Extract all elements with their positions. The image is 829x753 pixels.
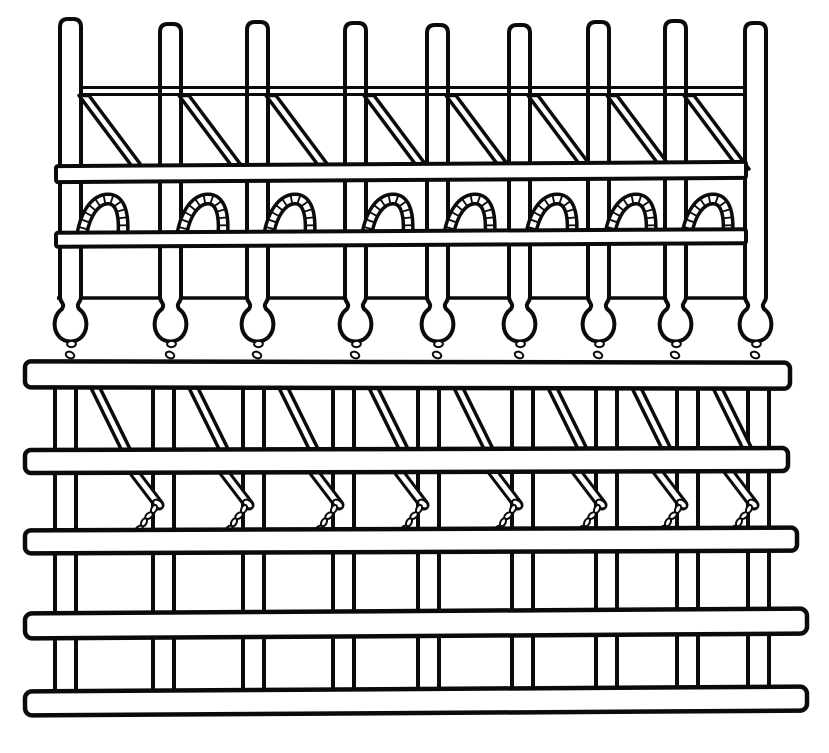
- top-diagonal-strut: [364, 96, 429, 170]
- top-diagonal-strut: [179, 96, 244, 170]
- bulb-chain-link: [672, 341, 681, 348]
- bulb-chain-link: [165, 350, 175, 359]
- lower-diagonal-strut: [453, 386, 495, 453]
- lower-rail-5: [25, 687, 807, 716]
- loop-segment-tick: [117, 217, 127, 218]
- needle-bar: [583, 22, 615, 342]
- bulb-chain-link: [514, 350, 524, 359]
- bulb-chain-link: [252, 350, 262, 359]
- bulb-chain-link: [750, 350, 760, 359]
- loop-segment-tick: [722, 217, 732, 218]
- needle-bar: [740, 23, 772, 342]
- top-diagonal-strut: [79, 96, 144, 170]
- lower-rail-1: [25, 361, 790, 388]
- bulb-chain-link: [67, 341, 76, 348]
- loop-segment-tick: [645, 217, 655, 218]
- bulb-chain-link: [65, 350, 75, 359]
- chevron-hooks: [130, 467, 759, 534]
- upper-rail-2: [56, 229, 746, 247]
- lower-rail-2: [25, 448, 788, 473]
- loop-segment-tick: [402, 217, 412, 218]
- lower-rail-3: [25, 528, 797, 554]
- loop-segment-tick: [304, 217, 314, 218]
- top-diagonal-strut: [607, 96, 672, 170]
- bulb-chain-link: [350, 350, 360, 359]
- bulb-chain-link: [516, 341, 525, 348]
- lower-diagonal-strut: [188, 386, 230, 453]
- loop-segment-tick: [484, 217, 494, 218]
- top-diagonal-strut: [266, 96, 331, 170]
- needle-bar: [422, 25, 454, 342]
- loop-segment-tick: [217, 217, 227, 218]
- knitting-machine-figure: [0, 0, 829, 753]
- top-diagonal-strut: [446, 96, 511, 170]
- bulb-chain-link: [752, 341, 761, 348]
- lower-diagonal-strut: [278, 386, 320, 453]
- lower-diagonal-strut: [90, 386, 132, 453]
- loop-segment-tick: [566, 217, 576, 218]
- bulb-chain-link: [167, 341, 176, 348]
- top-diagonal-strut: [684, 96, 749, 170]
- bulb-chain-link: [595, 341, 604, 348]
- bulb-chain-link: [593, 350, 603, 359]
- lower-diagonal-strut: [368, 386, 410, 453]
- bulb-chain-link: [670, 350, 680, 359]
- upper-rail-1: [56, 162, 746, 182]
- bulb-chain-link: [434, 341, 443, 348]
- needle-bar: [660, 21, 692, 342]
- bulb-chain-link: [254, 341, 263, 348]
- lower-diagonal-strut: [631, 386, 673, 453]
- top-diagonal-strut: [528, 96, 593, 170]
- needle-bar: [504, 25, 536, 342]
- bulb-chain-link: [432, 350, 442, 359]
- bulb-chain-link: [352, 341, 361, 348]
- lower-diagonal-strut: [547, 386, 589, 453]
- figure-canvas: [0, 0, 829, 753]
- lower-rail-4: [25, 609, 807, 639]
